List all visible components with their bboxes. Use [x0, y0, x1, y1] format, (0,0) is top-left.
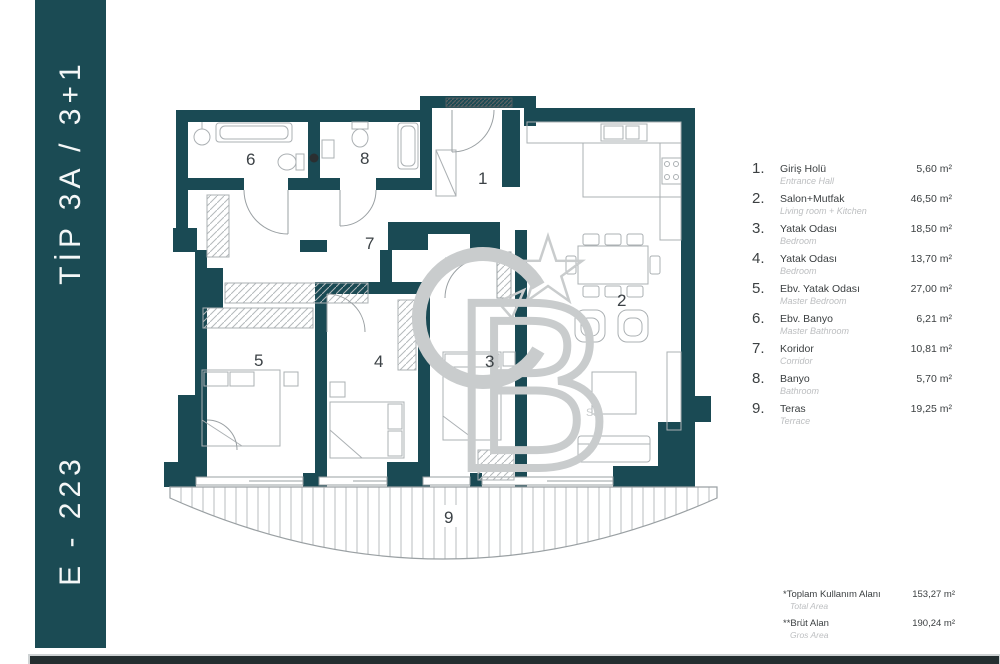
room-label-4: 4	[374, 352, 383, 371]
stove-icon	[662, 158, 681, 184]
room-label-3: 3	[485, 352, 494, 371]
legend-name: Salon+Mutfak	[780, 192, 909, 206]
legend-area: 5,70 m²	[916, 372, 952, 386]
legend-name-en: Bathroom	[780, 386, 952, 397]
legend-number: 3.	[752, 222, 778, 236]
legend-area: 5,60 m²	[916, 162, 952, 176]
legend-area: 6,21 m²	[916, 312, 952, 326]
legend-number: 7.	[752, 342, 778, 356]
legend-row: 8. Banyo 5,70 m² Bathroom	[752, 372, 952, 397]
bottom-bar	[28, 654, 1000, 664]
legend-name-en: Terrace	[780, 416, 952, 427]
total-area: 153,27 m²	[912, 589, 955, 601]
legend-name-en: Living room + Kitchen	[780, 206, 952, 217]
room-label-6: 6	[246, 150, 255, 169]
legend-number: 5.	[752, 282, 778, 296]
entrance-door-threshold	[446, 98, 512, 107]
room-label-2: 2	[617, 291, 626, 310]
legend-name-en: Entrance Hall	[780, 176, 952, 187]
legend-name-en: Bedroom	[780, 236, 952, 247]
toilet-icon	[352, 129, 368, 147]
legend-row: 3. Yatak Odası 18,50 m² Bedroom	[752, 222, 952, 247]
legend-name: Koridor	[780, 342, 909, 356]
room-label-7: 7	[365, 234, 374, 253]
legend-number: 9.	[752, 402, 778, 416]
legend-name: Yatak Odası	[780, 222, 909, 236]
legend-row: 6. Ebv. Banyo 6,21 m² Master Bathroom	[752, 312, 952, 337]
legend-row: 9. Teras 19,25 m² Terrace	[752, 402, 952, 427]
kitchen-sink-icon	[601, 124, 647, 141]
area-totals: *Toplam Kullanım Alanı 153,27 m² Total A…	[783, 589, 955, 647]
armchair-icon	[618, 310, 648, 342]
wall-niche	[428, 234, 470, 250]
legend-name-en: Bedroom	[780, 266, 952, 277]
legend-name: Ebv. Yatak Odası	[780, 282, 909, 296]
total-name: *Toplam Kullanım Alanı	[783, 589, 904, 601]
legend-area: 18,50 m²	[911, 222, 952, 236]
shower-icon	[194, 129, 210, 145]
legend-area: 13,70 m²	[911, 252, 952, 266]
legend-name-en: Corridor	[780, 356, 952, 367]
legend-name: Giriş Holü	[780, 162, 914, 176]
total-name-en: Total Area	[790, 601, 955, 612]
shaft-icon	[310, 154, 319, 163]
room-label-8: 8	[360, 149, 369, 168]
legend-area: 27,00 m²	[911, 282, 952, 296]
legend-number: 1.	[752, 162, 778, 176]
legend-area: 19,25 m²	[911, 402, 952, 416]
legend-name: Ebv. Banyo	[780, 312, 914, 326]
toilet-icon	[278, 154, 296, 170]
total-name-en: Gros Area	[790, 630, 955, 641]
legend-number: 6.	[752, 312, 778, 326]
legend-row: 5. Ebv. Yatak Odası 27,00 m² Master Bedr…	[752, 282, 952, 307]
wardrobe-icon	[225, 283, 368, 303]
legend-name: Banyo	[780, 372, 914, 386]
legend-row: 2. Salon+Mutfak 46,50 m² Living room + K…	[752, 192, 952, 217]
tv-unit	[667, 352, 681, 430]
total-area: 190,24 m²	[912, 618, 955, 630]
room-label-5: 5	[254, 351, 263, 370]
room-legend: 1. Giriş Holü 5,60 m² Entrance Hall 2. S…	[752, 162, 952, 432]
legend-name-en: Master Bathroom	[780, 326, 952, 337]
bed-icon	[202, 370, 280, 446]
legend-row: 1. Giriş Holü 5,60 m² Entrance Hall	[752, 162, 952, 187]
room-label-9: 9	[444, 508, 453, 527]
legend-number: 4.	[752, 252, 778, 266]
watermark-sm: SM	[586, 407, 603, 419]
total-name: **Brüt Alan	[783, 618, 904, 630]
watermark-b: B	[452, 251, 612, 519]
wardrobe-icon	[203, 308, 313, 328]
legend-area: 10,81 m²	[911, 342, 952, 356]
legend-row: 7. Koridor 10,81 m² Corridor	[752, 342, 952, 367]
total-row: *Toplam Kullanım Alanı 153,27 m²	[783, 589, 955, 601]
legend-name-en: Master Bedroom	[780, 296, 952, 307]
legend-name: Teras	[780, 402, 909, 416]
legend-name: Yatak Odası	[780, 252, 909, 266]
bed-icon	[330, 402, 404, 458]
sink-icon	[322, 140, 334, 158]
legend-number: 8.	[752, 372, 778, 386]
room-label-1: 1	[478, 169, 487, 188]
total-row: **Brüt Alan 190,24 m²	[783, 618, 955, 630]
legend-row: 4. Yatak Odası 13,70 m² Bedroom	[752, 252, 952, 277]
wardrobe-icon	[207, 195, 229, 257]
legend-number: 2.	[752, 192, 778, 206]
floor-plan-page: TİP 3A / 3+1 E - 223	[0, 0, 1000, 664]
legend-area: 46,50 m²	[911, 192, 952, 206]
